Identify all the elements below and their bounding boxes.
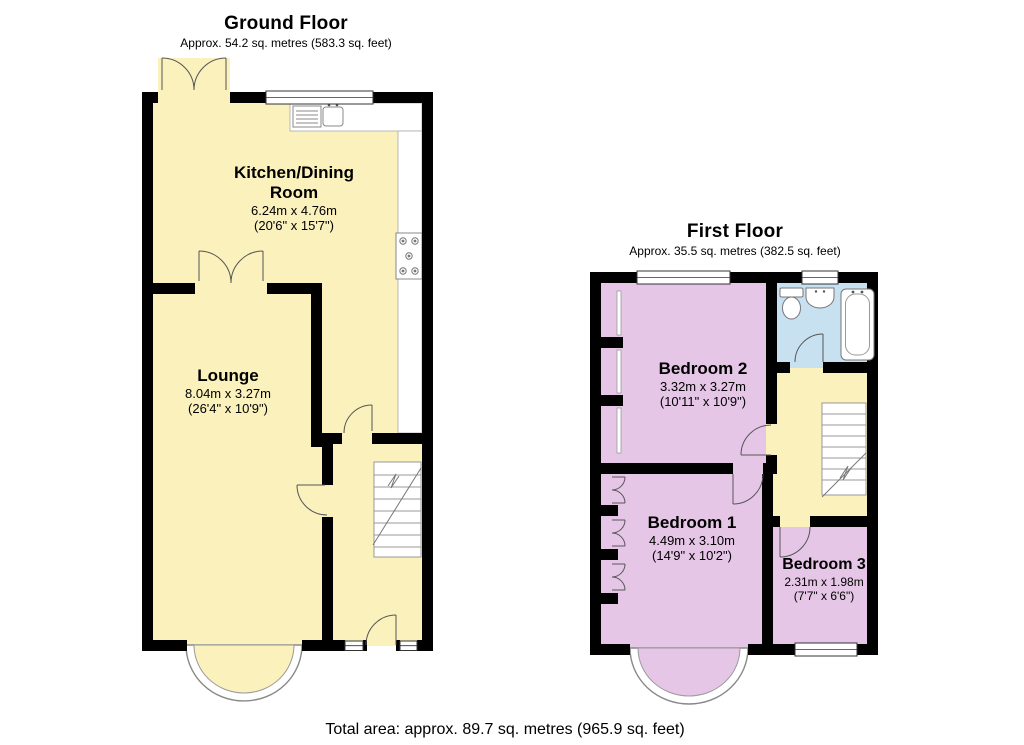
room-metric: 4.49m x 3.10m <box>617 533 767 548</box>
first-floor-title: First Floor <box>585 221 885 243</box>
bath-icon <box>841 289 874 360</box>
first-floor-subtitle: Approx. 35.5 sq. metres (382.5 sq. feet) <box>585 244 885 258</box>
room-metric: 3.32m x 3.27m <box>628 379 778 394</box>
room-imperial: (26'4" x 10'9") <box>153 401 303 416</box>
ground-stairs-icon <box>373 462 421 557</box>
room-label-bedroom-2: Bedroom 2 3.32m x 3.27m (10'11" x 10'9") <box>628 359 778 410</box>
room-imperial: (7'7" x 6'6") <box>754 589 894 603</box>
room-metric: 8.04m x 3.27m <box>153 386 303 401</box>
room-metric: 2.31m x 1.98m <box>754 575 894 589</box>
room-imperial: (20'6" x 15'7") <box>219 218 369 233</box>
floorplan-page: Ground Floor Approx. 54.2 sq. metres (58… <box>0 0 1024 745</box>
first-bay-window <box>630 648 748 704</box>
room-label-bedroom-1: Bedroom 1 4.49m x 3.10m (14'9" x 10'2") <box>617 513 767 564</box>
hob-icon <box>396 233 422 279</box>
total-area-text: Total area: approx. 89.7 sq. metres (965… <box>285 721 725 739</box>
room-label-bedroom-3: Bedroom 3 2.31m x 1.98m (7'7" x 6'6") <box>754 556 894 603</box>
first-stairs-icon <box>822 403 866 497</box>
ground-floor-subtitle: Approx. 54.2 sq. metres (583.3 sq. feet) <box>136 36 436 50</box>
basin-icon <box>806 288 834 308</box>
room-name: Bedroom 3 <box>754 556 894 575</box>
room-label-kitchen-dining: Kitchen/Dining Room 6.24m x 4.76m (20'6"… <box>219 163 369 234</box>
room-name: Lounge <box>153 366 303 386</box>
kitchen-sink-icon <box>293 104 343 127</box>
room-metric: 6.24m x 4.76m <box>219 203 369 218</box>
room-name: Bedroom 1 <box>617 513 767 533</box>
closet-doors <box>617 291 621 453</box>
ground-floor-title: Ground Floor <box>136 13 436 35</box>
ground-bay-window <box>186 645 302 701</box>
first-floor-plan <box>590 271 878 704</box>
room-name: Bedroom 2 <box>628 359 778 379</box>
room-imperial: (14'9" x 10'2") <box>617 548 767 563</box>
room-imperial: (10'11" x 10'9") <box>628 394 778 409</box>
room-name: Kitchen/Dining Room <box>219 163 369 203</box>
room-label-lounge: Lounge 8.04m x 3.27m (26'4" x 10'9") <box>153 366 303 417</box>
